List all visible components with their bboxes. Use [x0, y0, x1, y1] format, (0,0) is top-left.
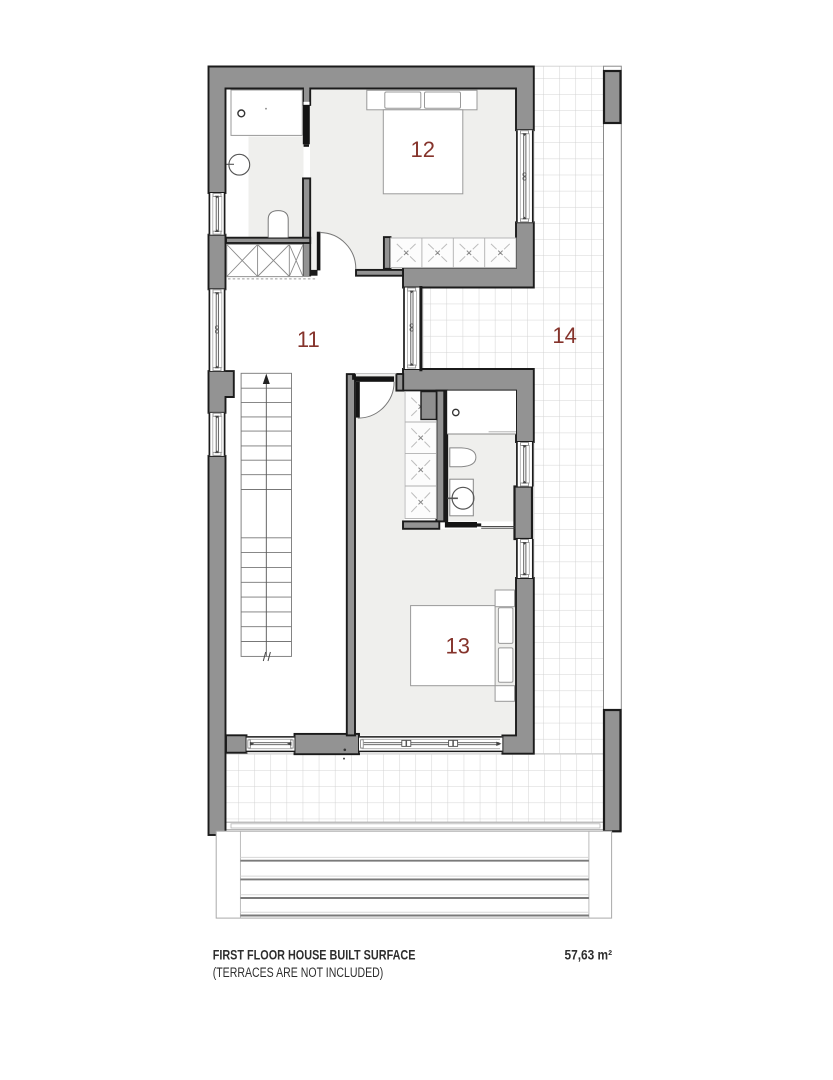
svg-text:57,63 m²: 57,63 m² [565, 946, 613, 962]
svg-text:12: 12 [411, 137, 435, 162]
svg-text:FIRST FLOOR HOUSE BUILT SURFAC: FIRST FLOOR HOUSE BUILT SURFACE [213, 946, 416, 962]
svg-text:13: 13 [446, 634, 470, 659]
svg-text:(TERRACES ARE NOT INCLUDED): (TERRACES ARE NOT INCLUDED) [213, 965, 384, 980]
svg-text:11: 11 [297, 327, 320, 352]
svg-text:14: 14 [552, 323, 576, 348]
